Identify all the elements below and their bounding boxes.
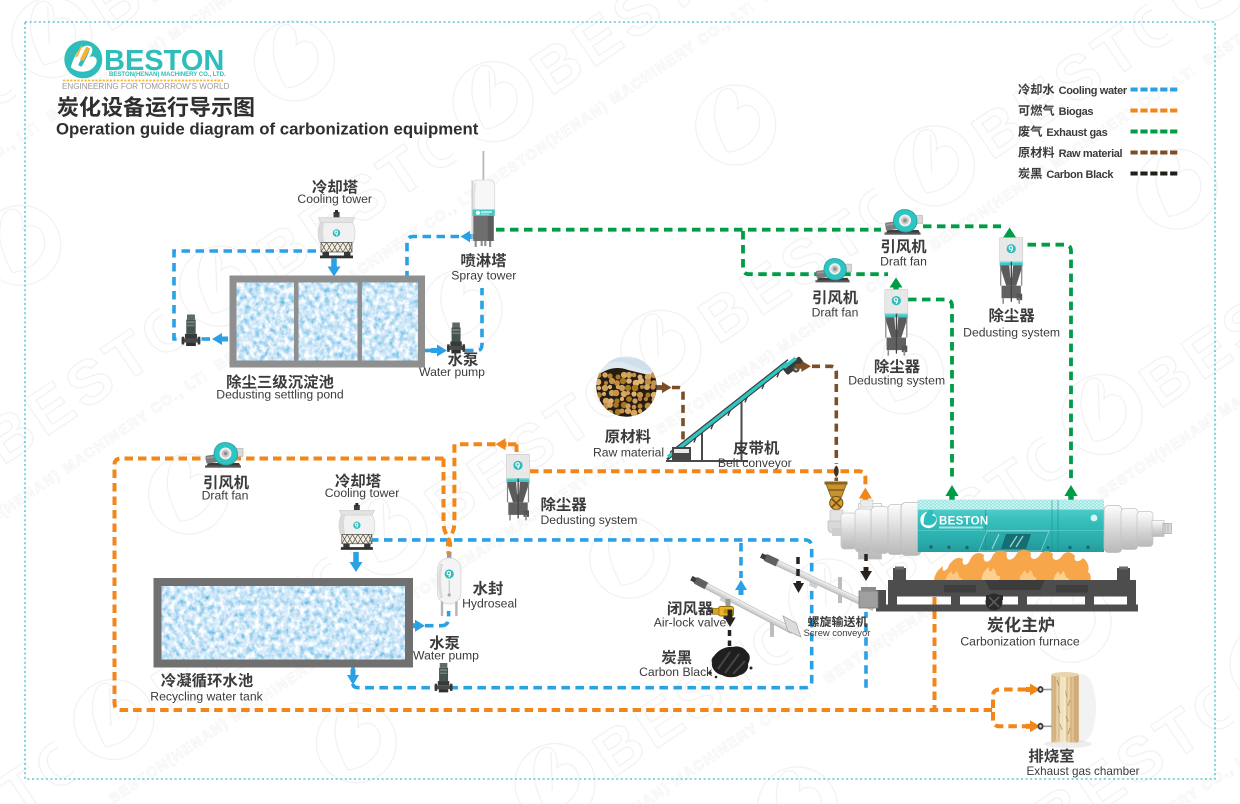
- svg-text:Raw material: Raw material: [1059, 148, 1123, 160]
- svg-text:ENGINEERING FOR TOMORROW’S WOR: ENGINEERING FOR TOMORROW’S WORLD: [62, 82, 230, 91]
- svg-text:Water pump: Water pump: [413, 649, 479, 663]
- svg-text:BESTON: BESTON: [939, 516, 989, 528]
- svg-text:Carbon Black: Carbon Black: [1046, 169, 1114, 181]
- svg-text:Recycling water tank: Recycling water tank: [150, 690, 263, 704]
- svg-text:Cooling tower: Cooling tower: [297, 192, 372, 206]
- svg-text:Cooling tower: Cooling tower: [325, 486, 400, 500]
- svg-text:Dedusting settling pond: Dedusting settling pond: [216, 388, 343, 402]
- svg-text:Screw conveyor: Screw conveyor: [804, 627, 871, 638]
- svg-text:Carbonization furnace: Carbonization furnace: [960, 635, 1079, 649]
- svg-text:Water pump: Water pump: [419, 365, 485, 379]
- svg-text:Draft fan: Draft fan: [202, 489, 249, 503]
- svg-text:Exhaust gas: Exhaust gas: [1046, 127, 1107, 139]
- svg-text:Air-lock valve: Air-lock valve: [654, 616, 727, 630]
- svg-text:Operation guide diagram of car: Operation guide diagram of carbonization…: [56, 120, 479, 139]
- svg-text:Cooling water: Cooling water: [1059, 85, 1128, 97]
- svg-text:Carbon Black: Carbon Black: [639, 665, 713, 679]
- svg-text:Draft fan: Draft fan: [812, 306, 859, 320]
- svg-text:Biogas: Biogas: [1059, 106, 1094, 118]
- svg-text:Spray tower: Spray tower: [451, 269, 516, 283]
- svg-text:Dedusting system: Dedusting system: [541, 513, 638, 527]
- svg-text:Exhaust gas chamber: Exhaust gas chamber: [1026, 765, 1139, 778]
- svg-text:Dedusting system: Dedusting system: [848, 374, 945, 388]
- svg-text:BESTON(HENAN) MACHINERY CO., L: BESTON(HENAN) MACHINERY CO., LTD.: [109, 71, 226, 78]
- svg-text:Hydroseal: Hydroseal: [462, 597, 517, 611]
- svg-text:Dedusting system: Dedusting system: [963, 326, 1060, 340]
- svg-text:Raw material: Raw material: [593, 446, 664, 460]
- svg-text:Belt conveyor: Belt conveyor: [718, 456, 792, 470]
- svg-text:Draft fan: Draft fan: [880, 255, 927, 269]
